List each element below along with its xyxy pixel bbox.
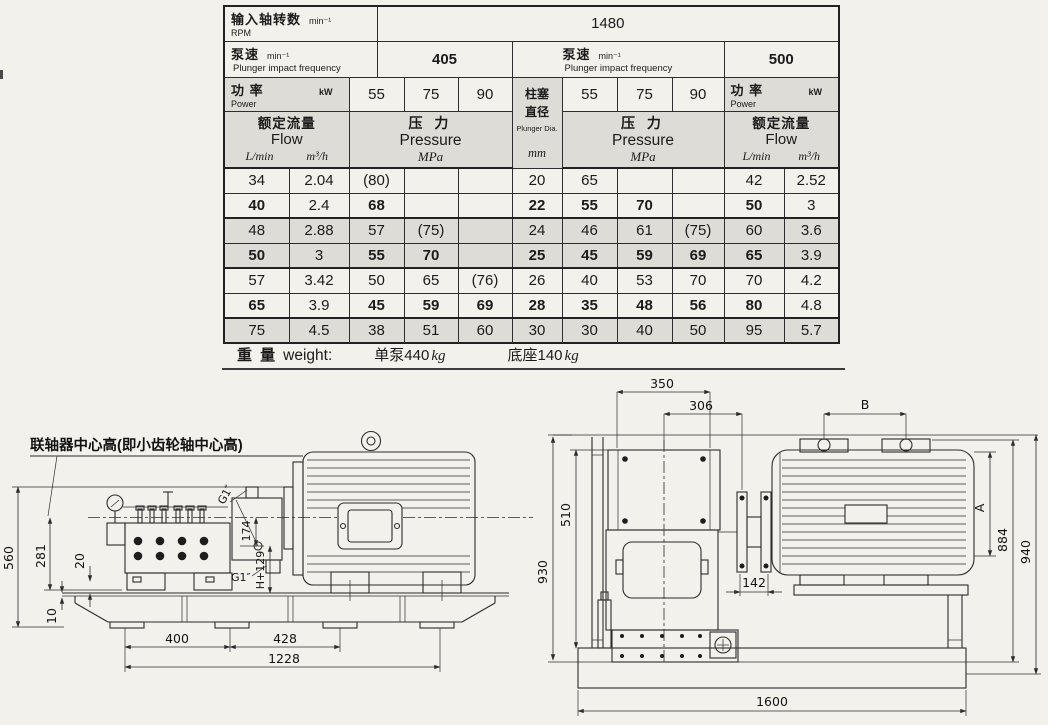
svg-text:10: 10 bbox=[44, 608, 59, 624]
coupling bbox=[718, 492, 771, 572]
table-cell: 51 bbox=[404, 318, 458, 343]
table-cell: 42 bbox=[724, 168, 784, 193]
weight-note: 重 量 weight: 单泵440 kg 底座140 kg bbox=[237, 344, 837, 365]
dim-B: B bbox=[824, 397, 906, 440]
table-cell: 2.04 bbox=[289, 168, 349, 193]
flow-unit-lmin: L/min bbox=[742, 149, 770, 164]
engineering-drawings: 联轴器中心高(即小齿轮轴中心高) 560 281 20 10 bbox=[0, 372, 1048, 725]
table-cell: 40 bbox=[224, 193, 289, 218]
table-cell bbox=[404, 168, 458, 193]
table-cell: 65 bbox=[562, 168, 617, 193]
table-row: 503557025455969653.9 bbox=[224, 243, 839, 268]
gearbox-end bbox=[598, 440, 738, 662]
table-cell: 4.5 bbox=[289, 318, 349, 343]
nameplate bbox=[845, 505, 887, 523]
table-row: 653.945596928354856804.8 bbox=[224, 293, 839, 318]
weight-label-zh: 重 量 bbox=[237, 344, 277, 365]
pump-speed-label-zh: 泵速 bbox=[563, 44, 591, 63]
table-cell: 50 bbox=[724, 193, 784, 218]
plunger-label-zh2: 直径 bbox=[513, 105, 562, 120]
table-cell: 68 bbox=[349, 193, 404, 218]
table-cell: 69 bbox=[458, 293, 512, 318]
table-cell: 3.42 bbox=[289, 268, 349, 293]
table-cell: (75) bbox=[672, 218, 724, 243]
dim-10: 10 bbox=[44, 581, 62, 624]
svg-text:1600: 1600 bbox=[756, 694, 788, 709]
pressure-label-en: Pressure bbox=[563, 133, 724, 149]
table-cell: 80 bbox=[724, 293, 784, 318]
table-cell: 38 bbox=[349, 318, 404, 343]
table-row-power: 功 率kW Power 55 75 90 柱塞 直径 Plunger Dia. … bbox=[224, 77, 839, 111]
dim-281: 281 bbox=[33, 518, 50, 590]
svg-text:510: 510 bbox=[558, 503, 573, 527]
pressure-label-zh: 压 力 bbox=[563, 113, 724, 133]
pressure-unit: MPa bbox=[563, 149, 724, 165]
table-cell: 45 bbox=[349, 293, 404, 318]
svg-text:1228: 1228 bbox=[268, 651, 300, 666]
svg-text:400: 400 bbox=[165, 631, 189, 646]
flow-unit-m3h: m³/h bbox=[306, 149, 328, 164]
table-cell: 70 bbox=[617, 193, 672, 218]
horizontal-rule bbox=[222, 368, 845, 370]
table-cell: 60 bbox=[458, 318, 512, 343]
table-cell: 28 bbox=[512, 293, 562, 318]
flow-unit-m3h: m³/h bbox=[798, 149, 820, 164]
electric-motor-end bbox=[772, 439, 974, 648]
pump-speed-label-zh: 泵速 bbox=[231, 44, 259, 63]
plunger-unit: mm bbox=[513, 146, 562, 161]
flow-label-en: Flow bbox=[725, 132, 839, 148]
table-cell: 59 bbox=[617, 243, 672, 268]
flow-label-zh: 额定流量 bbox=[725, 112, 839, 132]
valve-stems bbox=[136, 506, 206, 523]
power-value-cell: 90 bbox=[458, 77, 512, 111]
table-cell: 56 bbox=[672, 293, 724, 318]
table-cell: 65 bbox=[724, 243, 784, 268]
power-value-cell: 55 bbox=[562, 77, 617, 111]
table-cell: 5.7 bbox=[784, 318, 839, 343]
pressure-header-right: 压 力 Pressure MPa bbox=[562, 111, 724, 168]
table-cell: 30 bbox=[512, 318, 562, 343]
plunger-label-en: Plunger Dia. bbox=[513, 124, 562, 133]
weight-base-unit: kg bbox=[565, 348, 579, 365]
flow-header-left: 额定流量 Flow L/minm³/h bbox=[224, 111, 349, 168]
table-cell: 3 bbox=[784, 193, 839, 218]
table-cell: 45 bbox=[562, 243, 617, 268]
g1-label-bottom: G1″ bbox=[231, 571, 251, 584]
end-view-drawing: 142 bbox=[535, 376, 1041, 716]
weight-pump-unit: kg bbox=[431, 348, 445, 365]
table-cell: 55 bbox=[349, 243, 404, 268]
pressure-unit: MPa bbox=[350, 149, 512, 165]
svg-text:20: 20 bbox=[72, 553, 87, 569]
pump-speed-label-en: Plunger impact frequency bbox=[513, 63, 724, 76]
lubricator bbox=[598, 600, 611, 648]
table-cell: 4.2 bbox=[784, 268, 839, 293]
svg-text:A: A bbox=[972, 503, 987, 512]
table-row-pump-speed: 泵速min⁻¹ Plunger impact frequency 405 泵速m… bbox=[224, 41, 839, 77]
table-row-rpm: 输入轴转数min⁻¹ RPM 1480 bbox=[224, 6, 839, 41]
svg-text:884: 884 bbox=[995, 528, 1010, 552]
table-cell bbox=[458, 168, 512, 193]
plunger-dia-header-cell: 柱塞 直径 Plunger Dia. mm bbox=[512, 77, 562, 168]
table-cell: 3.6 bbox=[784, 218, 839, 243]
speed-500-cell: 500 bbox=[724, 41, 839, 77]
power-label-zh: 功 率 bbox=[231, 80, 264, 99]
table-cell: 2.52 bbox=[784, 168, 839, 193]
svg-text:142: 142 bbox=[742, 575, 766, 590]
svg-text:560: 560 bbox=[1, 546, 16, 570]
table-cell: 40 bbox=[562, 268, 617, 293]
dim-1600: 1600 bbox=[578, 690, 966, 716]
table-cell: 24 bbox=[512, 218, 562, 243]
dim-A: A bbox=[972, 452, 996, 556]
flow-header-right: 额定流量 Flow L/minm³/h bbox=[724, 111, 839, 168]
dim-400: 400 bbox=[125, 628, 230, 672]
table-cell: 57 bbox=[224, 268, 289, 293]
table-row: 482.8857(75)244661(75)603.6 bbox=[224, 218, 839, 243]
table-row: 754.538516030304050955.7 bbox=[224, 318, 839, 343]
dim-560: 560 bbox=[1, 487, 18, 627]
table-cell: 26 bbox=[512, 268, 562, 293]
flow-unit-lmin: L/min bbox=[245, 149, 273, 164]
flow-label-zh: 额定流量 bbox=[225, 112, 349, 132]
scanned-spec-page: { "page": { "bg": "#f2f1ec", "ink": "#2c… bbox=[0, 0, 1048, 725]
pressure-label-en: Pressure bbox=[350, 133, 512, 149]
svg-text:281: 281 bbox=[33, 544, 48, 568]
table-cell bbox=[458, 218, 512, 243]
table-cell: 75 bbox=[224, 318, 289, 343]
table-cell: 50 bbox=[224, 243, 289, 268]
rpm-value-cell: 1480 bbox=[377, 6, 839, 41]
table-cell: 70 bbox=[404, 243, 458, 268]
pressure-gauge-icon bbox=[107, 495, 123, 511]
table-cell: 34 bbox=[224, 168, 289, 193]
table-cell: (76) bbox=[458, 268, 512, 293]
table-row: 402.468225570503 bbox=[224, 193, 839, 218]
table-cell: 2.4 bbox=[289, 193, 349, 218]
crankcase-bottom bbox=[612, 630, 738, 662]
pump-speed-left-cell: 泵速min⁻¹ Plunger impact frequency bbox=[224, 41, 377, 77]
power-value-cell: 90 bbox=[672, 77, 724, 111]
power-right-cell: 功 率kW Power bbox=[724, 77, 839, 111]
dim-142: 142 bbox=[726, 574, 782, 596]
rpm-unit: min⁻¹ bbox=[309, 16, 331, 27]
table-cell: 59 bbox=[404, 293, 458, 318]
power-unit: kW bbox=[319, 87, 343, 97]
table-cell: (75) bbox=[404, 218, 458, 243]
table-cell: 65 bbox=[224, 293, 289, 318]
table-cell: 35 bbox=[562, 293, 617, 318]
table-cell: 55 bbox=[562, 193, 617, 218]
g1-label-top: G1″ bbox=[215, 483, 236, 506]
dim-510: 510 bbox=[558, 450, 608, 648]
power-value-cell: 75 bbox=[404, 77, 458, 111]
table-cell: 20 bbox=[512, 168, 562, 193]
rpm-label-zh: 输入轴转数 bbox=[231, 9, 301, 28]
dim-h129: H+129 bbox=[254, 546, 270, 593]
table-cell: 40 bbox=[617, 318, 672, 343]
svg-text:350: 350 bbox=[650, 376, 674, 391]
table-cell: 50 bbox=[672, 318, 724, 343]
dim-930: 930 bbox=[535, 435, 578, 662]
pump-speed-unit: min⁻¹ bbox=[267, 51, 289, 62]
weight-base-value: 底座140 bbox=[508, 344, 563, 365]
table-cell bbox=[617, 168, 672, 193]
rpm-header-cell: 输入轴转数min⁻¹ RPM bbox=[224, 6, 377, 41]
flow-label-en: Flow bbox=[225, 132, 349, 148]
plunger-pump-body bbox=[107, 492, 232, 590]
svg-text:428: 428 bbox=[273, 631, 297, 646]
table-cell: 25 bbox=[512, 243, 562, 268]
crankcase-bolts bbox=[134, 537, 209, 561]
table-cell bbox=[404, 193, 458, 218]
svg-text:B: B bbox=[861, 397, 870, 412]
pump-speed-right-cell: 泵速min⁻¹ Plunger impact frequency bbox=[512, 41, 724, 77]
dim-174: 174 bbox=[240, 518, 264, 546]
table-cell: 50 bbox=[349, 268, 404, 293]
svg-text:306: 306 bbox=[689, 398, 713, 413]
table-cell: 30 bbox=[562, 318, 617, 343]
table-row: 573.425065(76)26405370704.2 bbox=[224, 268, 839, 293]
pressure-label-zh: 压 力 bbox=[350, 113, 512, 133]
g1-port-bottom bbox=[266, 560, 280, 573]
power-left-cell: 功 率kW Power bbox=[224, 77, 349, 111]
svg-text:940: 940 bbox=[1018, 540, 1033, 564]
table-cell: 3.9 bbox=[784, 243, 839, 268]
power-unit: kW bbox=[809, 87, 833, 97]
dim-428: 428 bbox=[230, 628, 340, 652]
power-label-en: Power bbox=[725, 99, 839, 111]
table-cell: (80) bbox=[349, 168, 404, 193]
table-cell: 65 bbox=[404, 268, 458, 293]
table-cell: 2.88 bbox=[289, 218, 349, 243]
electric-motor-side bbox=[284, 432, 475, 602]
table-row: 342.04(80)2065422.52 bbox=[224, 168, 839, 193]
table-cell bbox=[672, 168, 724, 193]
table-cell: 53 bbox=[617, 268, 672, 293]
rpm-label-en: RPM bbox=[225, 28, 377, 40]
table-cell: 61 bbox=[617, 218, 672, 243]
dim-884: 884 bbox=[932, 440, 1019, 662]
inspection-door bbox=[623, 542, 701, 598]
table-cell: 46 bbox=[562, 218, 617, 243]
speed-405-cell: 405 bbox=[377, 41, 512, 77]
svg-text:H+129: H+129 bbox=[254, 551, 267, 589]
weight-label-en: weight: bbox=[283, 347, 332, 365]
svg-text:174: 174 bbox=[240, 521, 253, 542]
g1-port-top bbox=[246, 487, 258, 498]
scan-artifact bbox=[0, 70, 3, 79]
table-cell: 70 bbox=[724, 268, 784, 293]
table-cell: 48 bbox=[617, 293, 672, 318]
table-cell: 70 bbox=[672, 268, 724, 293]
power-label-zh: 功 率 bbox=[731, 80, 764, 99]
table-cell bbox=[672, 193, 724, 218]
table-cell: 60 bbox=[724, 218, 784, 243]
power-value-cell: 75 bbox=[617, 77, 672, 111]
table-cell: 57 bbox=[349, 218, 404, 243]
power-value-cell: 55 bbox=[349, 77, 404, 111]
table-cell: 95 bbox=[724, 318, 784, 343]
table-cell: 3.9 bbox=[289, 293, 349, 318]
pump-spec-table: 输入轴转数min⁻¹ RPM 1480 泵速min⁻¹ Plunger impa… bbox=[223, 5, 840, 344]
coupling-height-callout: 联轴器中心高(即小齿轮轴中心高) bbox=[30, 436, 243, 454]
table-cell bbox=[458, 193, 512, 218]
table-cell: 69 bbox=[672, 243, 724, 268]
pump-speed-unit: min⁻¹ bbox=[599, 51, 621, 62]
side-view-drawing: 联轴器中心高(即小齿轮轴中心高) 560 281 20 10 bbox=[1, 432, 533, 673]
table-cell bbox=[458, 243, 512, 268]
plunger-label-zh1: 柱塞 bbox=[513, 87, 562, 102]
dim-940: 940 bbox=[966, 435, 1041, 674]
dim-306: 306 bbox=[664, 398, 742, 490]
pump-speed-label-en: Plunger impact frequency bbox=[225, 63, 377, 76]
weight-pump-value: 单泵440 bbox=[374, 344, 429, 365]
svg-text:930: 930 bbox=[535, 560, 550, 584]
table-cell: 22 bbox=[512, 193, 562, 218]
power-label-en: Power bbox=[225, 99, 349, 111]
lifting-eye-icon bbox=[362, 432, 381, 451]
table-cell: 3 bbox=[289, 243, 349, 268]
table-cell: 48 bbox=[224, 218, 289, 243]
base-frame-end bbox=[578, 648, 966, 688]
table-cell: 4.8 bbox=[784, 293, 839, 318]
pressure-header-left: 压 力 Pressure MPa bbox=[349, 111, 512, 168]
